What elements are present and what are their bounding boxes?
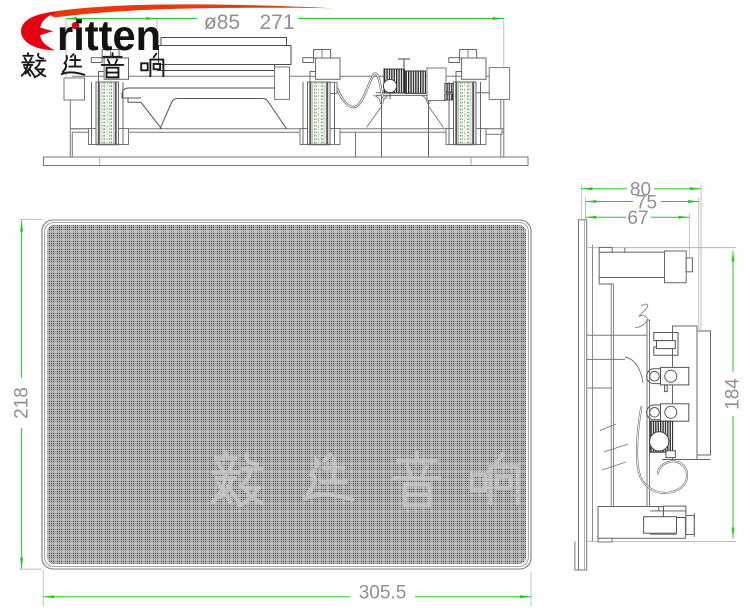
svg-text:218: 218 <box>12 387 33 419</box>
svg-text:67: 67 <box>627 208 648 229</box>
svg-text:ritten: ritten <box>57 12 161 60</box>
svg-text:305.5: 305.5 <box>359 583 407 604</box>
svg-text:ø85: ø85 <box>204 11 240 34</box>
svg-text:271: 271 <box>259 11 294 34</box>
svg-text:184: 184 <box>723 378 744 410</box>
